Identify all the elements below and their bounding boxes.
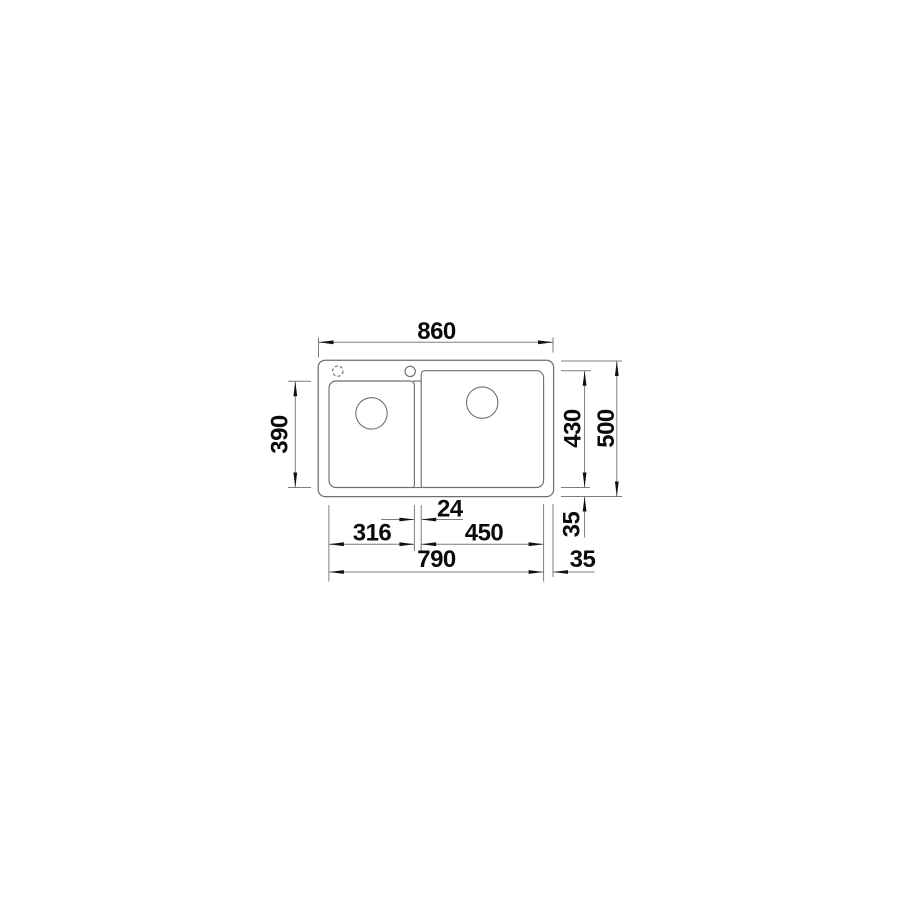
svg-text:24: 24 <box>437 496 464 523</box>
svg-text:860: 860 <box>417 318 456 345</box>
svg-text:500: 500 <box>593 409 620 448</box>
svg-text:450: 450 <box>465 520 504 547</box>
svg-text:35: 35 <box>559 512 586 538</box>
svg-text:35: 35 <box>570 546 596 573</box>
svg-text:316: 316 <box>353 520 392 547</box>
svg-text:790: 790 <box>417 546 456 573</box>
svg-text:390: 390 <box>267 415 294 454</box>
svg-text:430: 430 <box>560 409 587 448</box>
